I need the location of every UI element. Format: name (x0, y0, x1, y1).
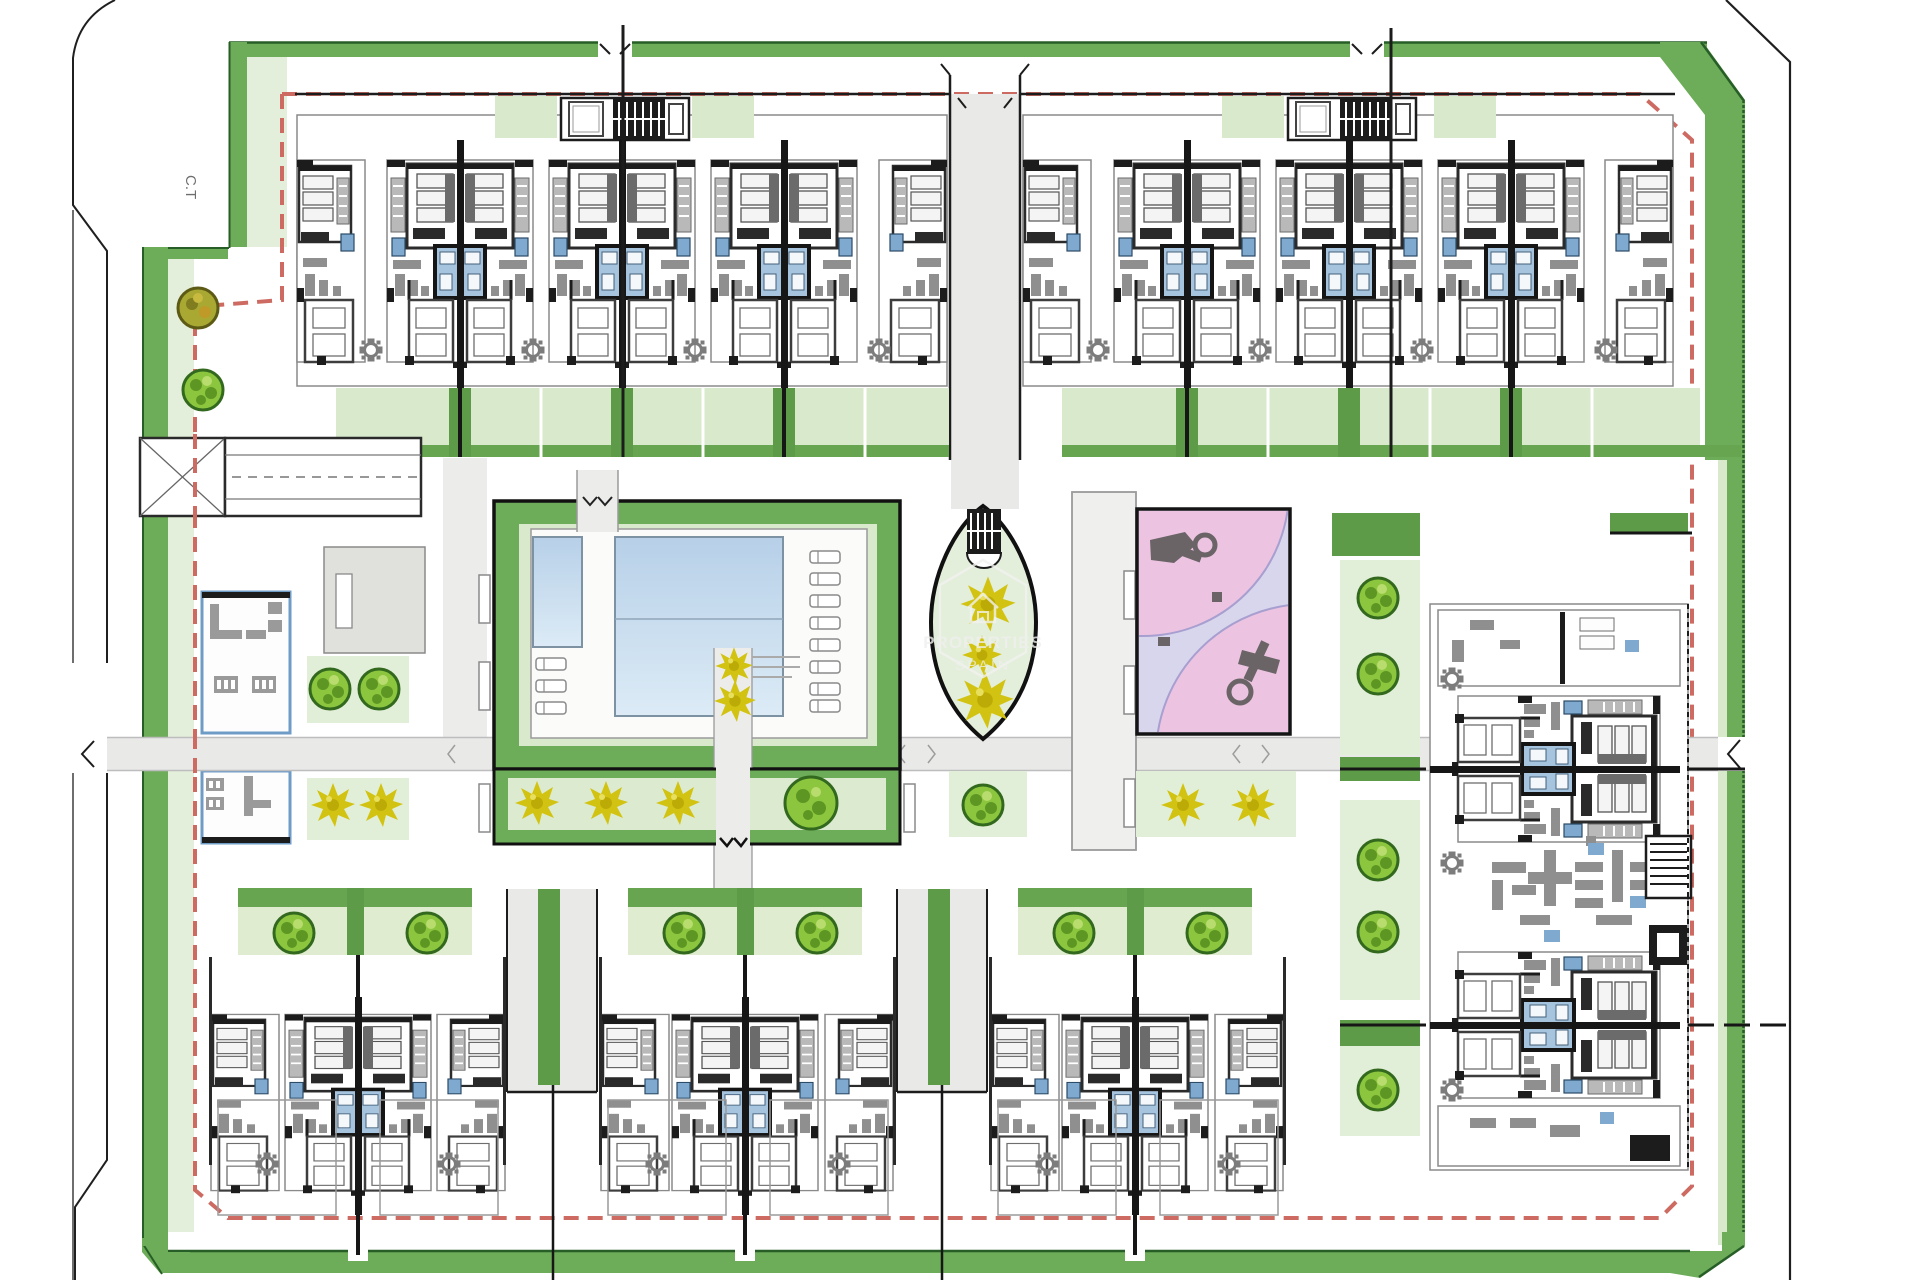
svg-text:SPAIN: SPAIN (955, 657, 1011, 673)
svg-text:PROPERTIES: PROPERTIES (923, 633, 1043, 652)
svg-text:C.T: C.T (182, 175, 199, 199)
